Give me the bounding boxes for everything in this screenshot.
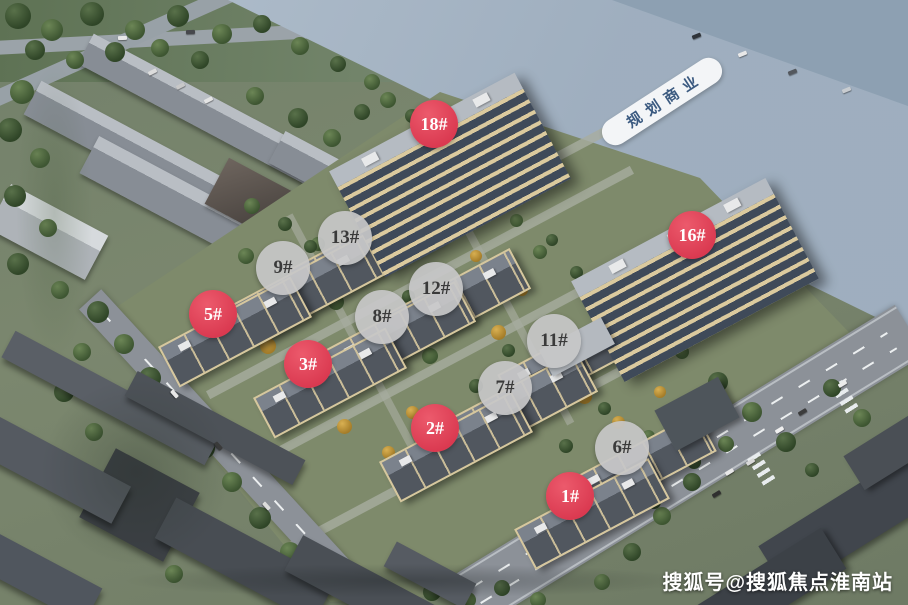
building-marker-18: 18# [410, 100, 458, 148]
marker-layer: 18#16#13#9#12#5#8#11#3#7#2#6#1# [0, 0, 908, 605]
building-marker-8: 8# [355, 290, 409, 344]
building-marker-2: 2# [411, 404, 459, 452]
building-marker-11: 11# [527, 314, 581, 368]
building-marker-12: 12# [409, 262, 463, 316]
building-marker-5: 5# [189, 290, 237, 338]
building-marker-9: 9# [256, 241, 310, 295]
watermark: 搜狐号@搜狐焦点淮南站 [662, 566, 893, 595]
aerial-masterplan-rendering: 规划商业 18#16#13#9#12#5#8#11#3#7#2#6#1# 搜狐号… [0, 0, 908, 605]
building-marker-3: 3# [284, 340, 332, 388]
building-marker-13: 13# [318, 211, 372, 265]
building-marker-6: 6# [595, 421, 649, 475]
building-marker-7: 7# [478, 361, 532, 415]
building-marker-16: 16# [668, 211, 716, 259]
building-marker-1: 1# [546, 472, 594, 520]
